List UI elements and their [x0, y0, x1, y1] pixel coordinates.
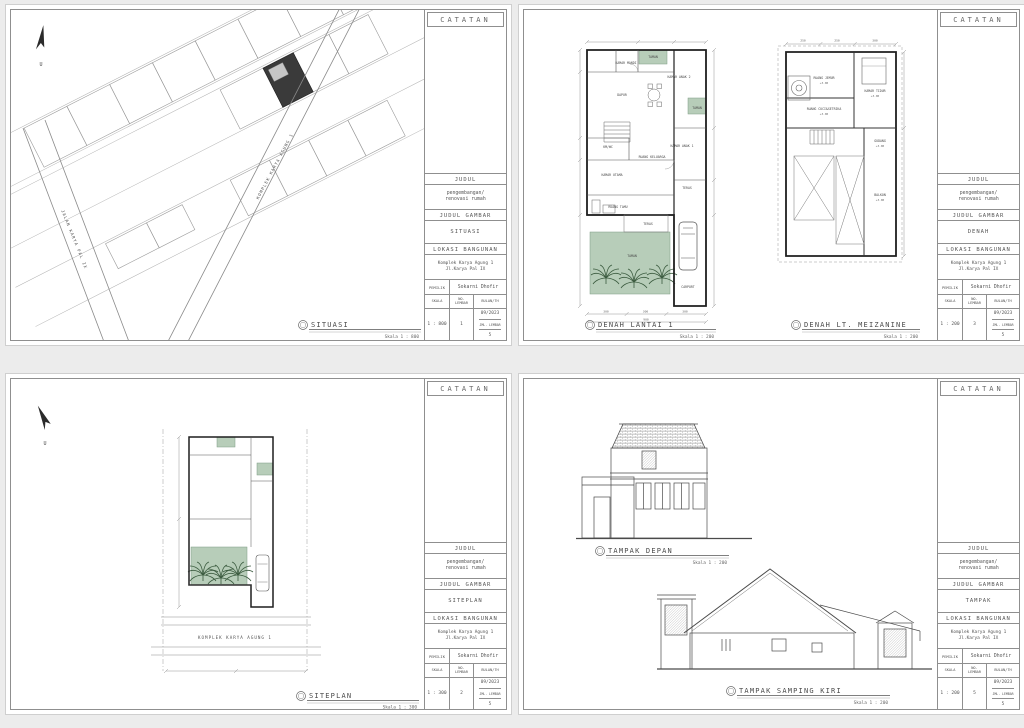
caption-title: SITUASI [311, 321, 349, 329]
room-label: TAMAN [627, 254, 637, 258]
no-lembar-label: NO. LEMBAR [962, 295, 986, 308]
title-block: CATATAN JUDUL pengembangan/ renovasi rum… [424, 10, 506, 340]
lokasi-label: LOKASI BANGUNAN [938, 612, 1019, 624]
hatched-porch [665, 605, 687, 635]
jml-lembar-value: 5 [1002, 699, 1005, 709]
dining-table [648, 84, 662, 107]
jml-lembar-value: 5 [489, 330, 492, 340]
hatched-window [884, 629, 906, 657]
caption-situasi: SITUASI Skala 1 : 800 [299, 321, 422, 341]
pemilik-label: PEMILIK [938, 649, 962, 663]
pemilik-value: Sokarni Dhofir [962, 280, 1019, 294]
level-label: +3.00 [820, 112, 829, 116]
caption-scale: Skala 1 : 300 [383, 705, 418, 710]
caption-scale: Skala 1 : 200 [854, 700, 889, 706]
pemilik-value: Sokarni Dhofir [449, 649, 506, 663]
dim-text: 300 [682, 310, 688, 314]
bulan-label: BULAN/TH [986, 295, 1019, 308]
dim-text: 300 [603, 310, 609, 314]
lokasi-value: Komplek Karya Agung 1 Jl.Karya Pal IX [938, 255, 1019, 279]
catatan-header: CATATAN [940, 12, 1017, 27]
bulan-stack: 09/2023 JML. LEMBAR 5 [473, 309, 506, 340]
judul-label: JUDUL [938, 542, 1019, 554]
judul-gambar-label: JUDUL GAMBAR [425, 578, 506, 590]
north-arrow-icon [36, 25, 47, 51]
skala-value: 1 : 200 [938, 309, 962, 340]
caption-title: TAMPAK SAMPING KIRI [739, 687, 842, 695]
road-label-komplek: KOMPLEK KARYA AGUNG 1 [255, 132, 294, 200]
level-label: +3.00 [876, 144, 885, 148]
no-lembar-label: NO. LEMBAR [449, 664, 473, 677]
pemilik-label: PEMILIK [425, 280, 449, 294]
north-arrow-icon [34, 404, 52, 430]
room-label: TAMAN [648, 55, 658, 59]
dim-text: 250 [834, 39, 840, 43]
room-label: KAMAR ANAK 1 [670, 144, 693, 148]
no-lembar-value: 5 [962, 678, 986, 709]
washing-machine-icon [788, 76, 810, 100]
north-label: U [43, 441, 46, 447]
caption-siteplan: SITEPLAN Skala 1 : 300 [297, 692, 420, 710]
taman-area [191, 547, 247, 585]
judul-gambar-value: TAMPAK [938, 590, 1019, 612]
dim-text: 300 [643, 310, 649, 314]
skala-value: 1 : 200 [938, 678, 962, 709]
bulan-value: 09/2023 [994, 678, 1013, 688]
lokasi-label: LOKASI BANGUNAN [938, 243, 1019, 255]
judul-value: pengembangan/ renovasi rumah [425, 554, 506, 578]
room-label: KAMAR UTAMA [601, 173, 622, 177]
bulan-label: BULAN/TH [473, 295, 506, 308]
judul-gambar-label: JUDUL GAMBAR [938, 578, 1019, 590]
notes-area [938, 29, 1019, 173]
jml-lembar-label: JML. LEMBAR [479, 688, 500, 700]
project-site-building [263, 53, 313, 108]
caption-tampak-samping: TAMPAK SAMPING KIRI Skala 1 : 200 [727, 687, 891, 707]
denah-drawing: 300 300 300 900 TAMAN KAMAR MANDI DAPUR … [524, 10, 937, 340]
sheet-denah: 300 300 300 900 TAMAN KAMAR MANDI DAPUR … [518, 4, 1024, 346]
room-label: DAPUR [617, 93, 627, 97]
skala-label: SKALA [938, 295, 962, 308]
room-label: RUANG KELUARGA [639, 155, 666, 159]
jml-lembar-value: 5 [489, 699, 492, 709]
taman-area [590, 232, 670, 294]
bulan-label: BULAN/TH [473, 664, 506, 677]
plan-lantai1: 300 300 300 900 TAMAN KAMAR MANDI DAPUR … [578, 40, 716, 324]
judul-gambar-label: JUDUL GAMBAR [425, 209, 506, 221]
catatan-header: CATATAN [427, 12, 504, 27]
judul-label: JUDUL [425, 173, 506, 185]
tampak-drawing: TAMPAK DEPAN Skala 1 : 200 TAMPAK SAMPIN… [524, 379, 937, 709]
pemilik-label: PEMILIK [938, 280, 962, 294]
caption-title: SITEPLAN [309, 692, 352, 700]
bulan-value: 09/2023 [994, 309, 1013, 319]
pemilik-value: Sokarni Dhofir [962, 649, 1019, 663]
parcel-grid [11, 10, 424, 327]
catatan-header: CATATAN [940, 381, 1017, 396]
sheet-frame: TAMPAK DEPAN Skala 1 : 200 TAMPAK SAMPIN… [523, 378, 1020, 710]
no-lembar-value: 3 [962, 309, 986, 340]
judul-value: pengembangan/ renovasi rumah [938, 185, 1019, 209]
door-swing [630, 64, 674, 169]
bulan-stack: 09/2023 JML. LEMBAR 5 [473, 678, 506, 709]
siteplan-house [188, 437, 273, 607]
level-label: +3.00 [871, 94, 880, 98]
catatan-header: CATATAN [427, 381, 504, 396]
room-label: BALKON [874, 193, 886, 197]
brick-roof [612, 424, 705, 448]
jml-lembar-label: JML. LEMBAR [479, 319, 500, 331]
lokasi-label: LOKASI BANGUNAN [425, 243, 506, 255]
judul-gambar-value: SITEPLAN [425, 590, 506, 612]
pemilik-value: Sokarni Dhofir [449, 280, 506, 294]
lokasi-value: Komplek Karya Agung 1 Jl.Karya Pal IX [425, 624, 506, 648]
sheet-tampak: TAMPAK DEPAN Skala 1 : 200 TAMPAK SAMPIN… [518, 373, 1024, 715]
skala-label: SKALA [938, 664, 962, 677]
lokasi-value: Komplek Karya Agung 1 Jl.Karya Pal IX [938, 624, 1019, 648]
lokasi-label: LOKASI BANGUNAN [425, 612, 506, 624]
room-label: RUANG CUCI&SETRIKA [807, 107, 842, 111]
title-block: CATATAN JUDUL pengembangan/ renovasi rum… [937, 10, 1019, 340]
bulan-value: 09/2023 [481, 678, 500, 688]
caption-scale: Skala 1 : 200 [693, 560, 728, 566]
void-roof-cross [794, 156, 864, 244]
pemilik-label: PEMILIK [425, 649, 449, 663]
room-label: KAMAR MANDI [615, 61, 636, 65]
level-label: +3.00 [820, 81, 829, 85]
street-label: KOMPLEK KARYA AGUNG 1 [198, 635, 272, 640]
room-label: KM/WC [603, 145, 613, 149]
caption-scale: Skala 1 : 800 [385, 334, 420, 340]
room-label: KAMAR TIDUR [864, 89, 885, 93]
sheet-frame: U KOMPLEK KARYA AGUNG 1 JALAN KARYA PAL … [10, 9, 507, 341]
level-label: +3.00 [876, 198, 885, 202]
car-icon [679, 222, 697, 270]
dimension-lines [784, 42, 906, 258]
bulan-value: 09/2023 [481, 309, 500, 319]
room-label: RUANG JEMUR [813, 76, 834, 80]
bulan-label: BULAN/TH [986, 664, 1019, 677]
room-label: TERAS [643, 222, 653, 226]
notes-area [425, 29, 506, 173]
room-label: CARPORT [681, 285, 695, 289]
no-lembar-value: 2 [449, 678, 473, 709]
hatched-vent [642, 451, 656, 469]
stairs [810, 130, 834, 144]
sheet-situasi: U KOMPLEK KARYA AGUNG 1 JALAN KARYA PAL … [5, 4, 512, 346]
room-label: GUDANG [874, 139, 886, 143]
judul-value: pengembangan/ renovasi rumah [938, 554, 1019, 578]
situasi-drawing: U KOMPLEK KARYA AGUNG 1 JALAN KARYA PAL … [11, 10, 424, 340]
room-label: TAMAN [692, 106, 702, 110]
judul-label: JUDUL [425, 542, 506, 554]
bulan-stack: 09/2023 JML. LEMBAR 5 [986, 678, 1019, 709]
car-icon [256, 555, 269, 591]
taman-area [217, 437, 235, 447]
sheet-frame: 300 300 300 900 TAMAN KAMAR MANDI DAPUR … [523, 9, 1020, 341]
stairs [604, 122, 630, 142]
jml-lembar-value: 5 [1002, 330, 1005, 340]
sheet-siteplan: U KOMPLEK KARYA AGUNG 1 [5, 373, 512, 715]
outer-walls [786, 52, 896, 256]
skala-value: 1 : 800 [425, 309, 449, 340]
title-block: CATATAN JUDUL pengembangan/ renovasi rum… [937, 379, 1019, 709]
caption-tampak-depan: TAMPAK DEPAN Skala 1 : 200 [596, 547, 730, 567]
jml-lembar-label: JML. LEMBAR [992, 688, 1013, 700]
judul-gambar-value: DENAH [938, 221, 1019, 243]
north-label: U [39, 62, 42, 68]
skala-label: SKALA [425, 664, 449, 677]
caption-title: DENAH LANTAI 1 [598, 321, 674, 329]
jml-lembar-label: JML. LEMBAR [992, 319, 1013, 331]
caption-scale: Skala 1 : 200 [680, 334, 715, 340]
drawing-set-page: { "page": {"background": "#ececec"}, "co… [0, 0, 1024, 728]
siteplan-drawing: U KOMPLEK KARYA AGUNG 1 [11, 379, 424, 709]
judul-gambar-value: SITUASI [425, 221, 506, 243]
taman-area [257, 463, 273, 475]
bed [862, 58, 886, 84]
no-lembar-value: 1 [449, 309, 473, 340]
room-label: TERAS [682, 186, 692, 190]
plan-mezzanine: 250 250 300 RUANG JEMUR +3.00 KAMAR TIDU… [778, 39, 906, 263]
sheet-frame: U KOMPLEK KARYA AGUNG 1 [10, 378, 507, 710]
judul-gambar-label: JUDUL GAMBAR [938, 209, 1019, 221]
room-label: RUANG TAMU [608, 205, 627, 209]
caption-denah-mezzanine: DENAH LT. MEIZANINE Skala 1 : 200 [792, 321, 921, 341]
road-label-jalan: JALAN KARYA PAL IX [60, 209, 88, 270]
dim-text: 300 [872, 39, 878, 43]
caption-title: TAMPAK DEPAN [608, 547, 673, 555]
room-label: KAMAR ANAK 2 [667, 75, 690, 79]
caption-scale: Skala 1 : 200 [884, 334, 919, 340]
elevation-samping-kiri [657, 569, 932, 669]
lokasi-value: Komplek Karya Agung 1 Jl.Karya Pal IX [425, 255, 506, 279]
title-block: CATATAN JUDUL pengembangan/ renovasi rum… [424, 379, 506, 709]
notes-area [938, 398, 1019, 542]
caption-title: DENAH LT. MEIZANINE [804, 321, 907, 329]
skala-label: SKALA [425, 295, 449, 308]
elevation-depan [576, 424, 752, 539]
judul-label: JUDUL [938, 173, 1019, 185]
notes-area [425, 398, 506, 542]
no-lembar-label: NO. LEMBAR [449, 295, 473, 308]
dim-text: 250 [800, 39, 806, 43]
caption-denah-lantai1: DENAH LANTAI 1 Skala 1 : 200 [586, 321, 717, 341]
skala-value: 1 : 300 [425, 678, 449, 709]
no-lembar-label: NO. LEMBAR [962, 664, 986, 677]
judul-value: pengembangan/ renovasi rumah [425, 185, 506, 209]
bulan-stack: 09/2023 JML. LEMBAR 5 [986, 309, 1019, 340]
